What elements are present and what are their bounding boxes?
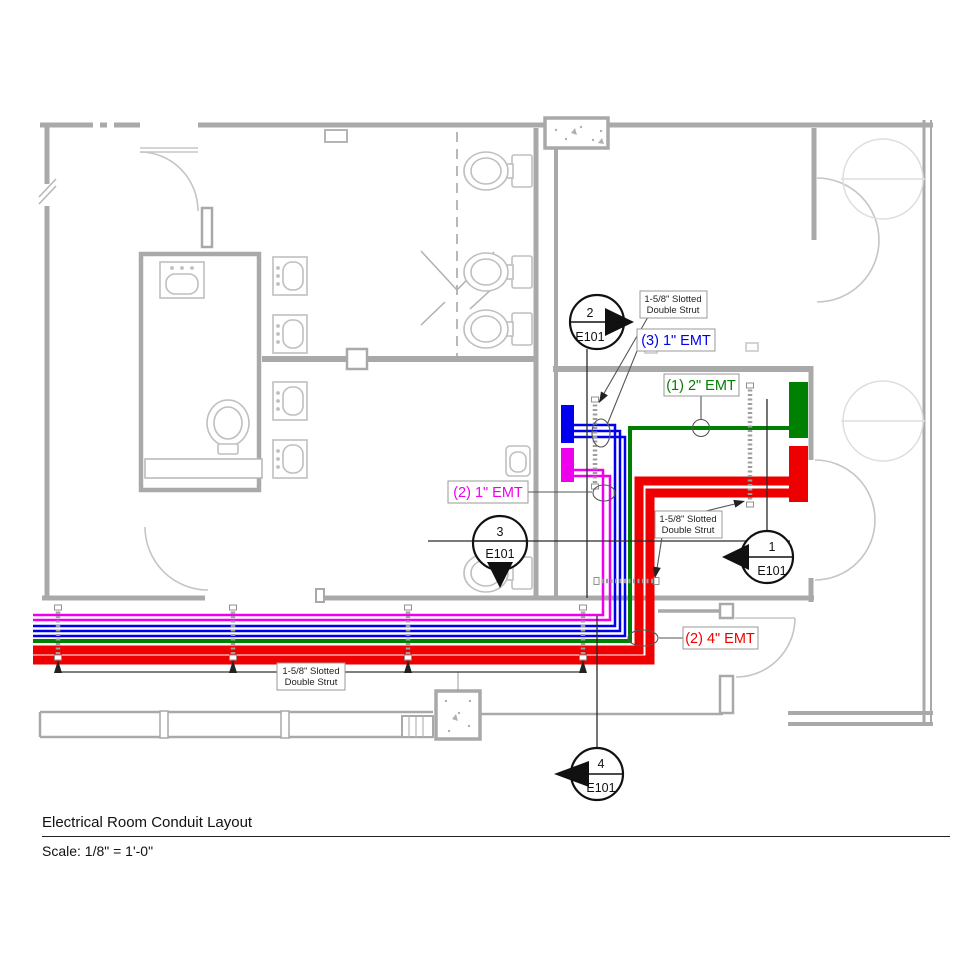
drawing-scale: Scale: 1/8" = 1'-0"	[42, 837, 952, 859]
section-marker-1: 1 E101	[722, 531, 793, 583]
svg-text:Double Strut: Double Strut	[662, 525, 715, 536]
strut-label-mid: 1-5/8" Slotted Double Strut	[655, 511, 722, 538]
toilet	[464, 310, 532, 348]
wall-bottom-right	[788, 713, 933, 724]
section-marker-2: 2 E101	[570, 295, 634, 349]
conduit-red	[33, 481, 789, 650]
marker-sheet: E101	[757, 564, 786, 578]
marker-sheet: E101	[586, 781, 615, 795]
column-top	[545, 118, 608, 148]
svg-text:Double Strut: Double Strut	[285, 677, 338, 688]
title-block: Electrical Room Conduit Layout Scale: 1/…	[42, 814, 952, 859]
door-arc-elec-room	[815, 460, 875, 580]
door-arc	[140, 152, 198, 211]
sink	[273, 382, 307, 420]
marker-number: 4	[598, 757, 605, 771]
wall-storefront	[40, 712, 433, 737]
marker-sheet: E101	[485, 547, 514, 561]
callout-text-green: (1) 2" EMT	[666, 378, 736, 394]
marker-number: 2	[587, 306, 594, 320]
door-leaf	[140, 148, 198, 152]
sink	[273, 257, 307, 295]
drinking-fountain	[325, 130, 347, 142]
counter	[145, 459, 262, 478]
callout-text-magenta: (2) 1" EMT	[453, 485, 523, 501]
callout-text-red: (2) 4" EMT	[685, 631, 755, 647]
marker-number: 1	[769, 540, 776, 554]
column-bubbles	[841, 139, 925, 461]
panel-green	[789, 382, 808, 438]
urinal	[506, 446, 530, 476]
conduit-blue	[33, 431, 620, 631]
sink	[160, 262, 204, 298]
storefront-mullion	[160, 711, 168, 738]
callout-text-blue: (3) 1" EMT	[641, 333, 711, 349]
marker-number: 3	[497, 525, 504, 539]
door-arc-upper-right	[817, 178, 879, 302]
toilet	[464, 152, 532, 190]
toilet	[207, 400, 249, 454]
svg-text:1-5/8" Slotted: 1-5/8" Slotted	[659, 514, 716, 525]
stair-detail	[402, 716, 433, 737]
leader-line	[607, 346, 639, 425]
drawing-sheet: 2 E101 3 E101 1 E101 4 E101	[0, 0, 980, 980]
svg-text:Double Strut: Double Strut	[647, 305, 700, 316]
column-bottom	[436, 691, 480, 739]
sink	[273, 315, 307, 353]
door-jamb	[202, 208, 212, 247]
door-jamb	[720, 676, 733, 713]
drawing-title: Electrical Room Conduit Layout	[42, 814, 952, 836]
strut-label-bottom: 1-5/8" Slotted Double Strut	[277, 663, 345, 690]
conduit-run-red	[33, 481, 789, 660]
sink	[273, 440, 307, 478]
section-marker-4: 4 E101	[554, 748, 623, 800]
door-arc	[145, 527, 208, 590]
marker-sheet: E101	[575, 330, 604, 344]
strut-label-top: 1-5/8" Slotted Double Strut	[640, 291, 707, 318]
wall-detail	[746, 343, 758, 351]
panel-magenta	[561, 448, 574, 482]
door-jamb	[316, 589, 324, 602]
panel-red	[789, 446, 808, 502]
storefront-mullion	[281, 711, 289, 738]
svg-text:1-5/8" Slotted: 1-5/8" Slotted	[644, 294, 701, 305]
door-jamb	[720, 604, 733, 618]
svg-text:1-5/8" Slotted: 1-5/8" Slotted	[282, 666, 339, 677]
pilaster	[347, 349, 367, 369]
panel-blue	[561, 405, 574, 443]
toilet	[464, 253, 532, 291]
